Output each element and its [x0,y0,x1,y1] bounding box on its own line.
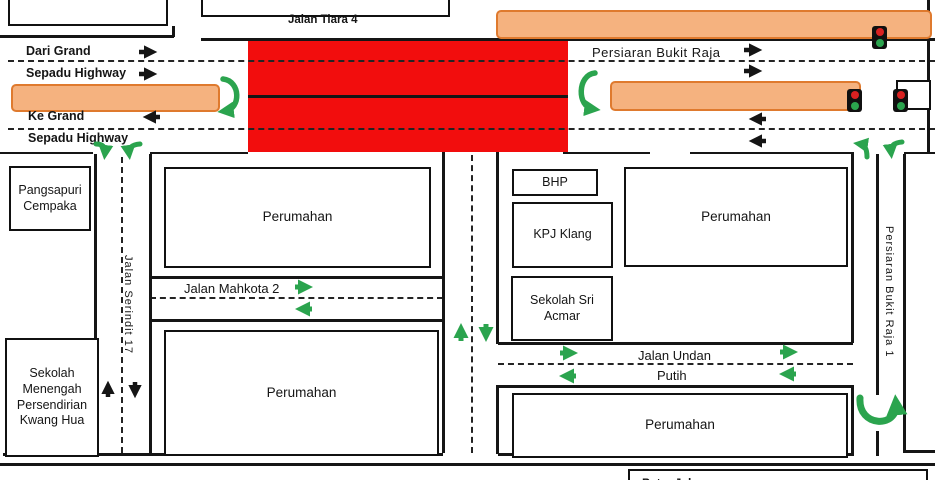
building-perumahan-northwest: Perumahan [164,167,431,268]
highway-south-edge [563,152,650,155]
road-label-persiaran-bukit-raja-1: Persiaran Bukit Raja 1 [883,226,895,357]
road-label-jalan-undan-line2: Putih [657,368,687,383]
turn-in-arrow [891,142,902,152]
median-island-west [11,84,220,112]
road-closure-map: Pangsapuri Cempaka Sekolah Menengah Pers… [0,0,935,480]
highway-south-edge [150,152,248,155]
map-caption-text: Peta: Jalan [642,476,705,480]
road-edge [150,319,443,322]
building-label: Perumahan [701,209,771,226]
u-turn-arrow-east [581,73,595,109]
highway-to-label-line2: Sepadu Highway [28,131,128,145]
u-turn-arrow-west [223,79,237,111]
building-label: Pangsapuri Cempaka [11,183,89,214]
building-perumahan-northeast: Perumahan [624,167,848,267]
road-label-jalan-undan-line1: Jalan Undan [638,348,711,363]
highway-from-label-line1: Dari Grand [26,44,91,58]
road-center-line [876,154,879,395]
u-turn-arrow-south [860,398,896,421]
building-label: Sekolah Menengah Persendirian Kwang Hua [9,366,95,429]
map-bottom-road-edge [0,463,935,466]
road-edge [172,26,175,37]
turn-in-arrow [96,144,105,153]
building-label: Perumahan [263,209,333,226]
map-caption-box: Peta: Jalan [628,469,928,480]
road-edge [496,152,499,344]
highway-to-label-line1: Ke Grand [28,109,84,123]
building-bhp: BHP [512,169,598,196]
building-perumahan-southwest: Perumahan [164,330,439,456]
building-label: KPJ Klang [533,227,591,243]
building-pangsapuri-cempaka: Pangsapuri Cempaka [9,166,91,231]
road-edge [851,385,854,456]
building-perumahan-southeast: Perumahan [512,393,848,458]
lane-divider-dashed [150,297,443,299]
road-edge [851,152,854,343]
turn-in-arrow [129,144,140,153]
building-sekolah-kwang-hua: Sekolah Menengah Persendirian Kwang Hua [5,338,99,457]
lane-divider-dashed [498,363,853,365]
road-edge [496,385,499,454]
traffic-light-icon [893,89,908,112]
road-edge [498,385,853,388]
road-label-jalan-tiara: Jalan Tiara 4 [288,14,357,26]
building-label: Perumahan [645,417,715,434]
lane-divider-dashed [8,128,935,130]
median-line [248,95,568,98]
median-island-east [610,81,861,111]
road-edge [442,152,445,453]
road-edge [0,35,174,38]
traffic-light-icon [847,89,862,112]
turn-out-arrow [860,144,867,157]
road-edge [905,450,935,453]
building-label: Perumahan [267,385,337,402]
building-outline-top-left [8,0,168,26]
highway-south-edge [904,152,935,155]
building-label: Sekolah Sri Acmar [513,293,611,324]
building-label: BHP [542,175,568,191]
road-edge [903,154,906,453]
median-island-north [496,10,932,39]
road-label-jalan-serindit: Jalan Serindit 17 [122,255,134,354]
highway-south-edge [690,152,852,155]
lane-divider-dashed [471,155,473,453]
highway-from-label-line2: Sepadu Highway [26,66,126,80]
building-sekolah-sri-acmar: Sekolah Sri Acmar [511,276,613,341]
lane-divider-dashed [8,60,935,62]
road-label-jalan-mahkota: Jalan Mahkota 2 [184,281,279,296]
road-edge [150,276,443,279]
building-kpj-klang: KPJ Klang [512,202,613,268]
road-edge [149,154,152,454]
road-label-persiaran-bukit-raja: Persiaran Bukit Raja [592,45,721,60]
traffic-light-icon [872,26,887,49]
road-center-line [876,431,879,456]
highway-south-edge [0,152,93,155]
road-edge [498,342,853,345]
